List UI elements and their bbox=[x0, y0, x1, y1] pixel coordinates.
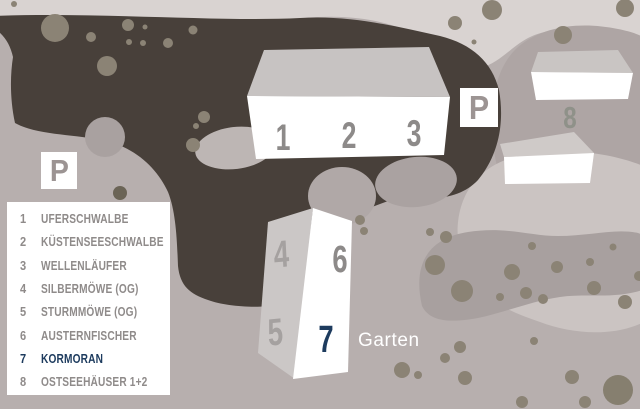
building-number-2: 2 bbox=[342, 115, 357, 156]
building-8-upper bbox=[531, 50, 633, 100]
legend-item-austernfischer: 6 AUSTERNFISCHER bbox=[20, 323, 170, 346]
building-123-roof bbox=[247, 47, 450, 97]
legend-item-wellenlaeufer: 3 WELLENLÄUFER bbox=[20, 254, 170, 277]
legend-item-number: 4 bbox=[20, 282, 38, 295]
legend-item-number: 7 bbox=[20, 352, 38, 365]
legend-item-number: 6 bbox=[20, 329, 38, 342]
legend-item-number: 5 bbox=[20, 305, 38, 318]
building-number-7-highlighted: 7 bbox=[318, 319, 333, 361]
legend-item-label: AUSTERNFISCHER bbox=[41, 329, 137, 342]
garden-label: Garten bbox=[358, 330, 420, 352]
legend-item-kormoran-highlighted: 7 KORMORAN bbox=[20, 347, 170, 370]
legend-item-label: SILBERMÖWE (OG) bbox=[41, 282, 139, 295]
legend-item-number: 2 bbox=[20, 235, 38, 248]
building-8-lower-front bbox=[504, 153, 594, 184]
building-number-5: 5 bbox=[267, 311, 284, 355]
building-number-4: 4 bbox=[273, 233, 291, 277]
legend-item-label: KORMORAN bbox=[41, 352, 103, 365]
legend-item-silbermoewe: 4 SILBERMÖWE (OG) bbox=[20, 277, 170, 300]
legend-item-label: STURMMÖWE (OG) bbox=[41, 305, 137, 318]
resort-site-map: 1 2 3 4 5 6 7 8 P P Garten bbox=[0, 0, 640, 409]
legend-item-number: 3 bbox=[20, 259, 38, 272]
parking-sign-letter: P bbox=[49, 153, 68, 189]
legend-item-label: KÜSTENSEESCHWALBE bbox=[41, 235, 164, 248]
legend-item-kuestenseeschwalbe: 2 KÜSTENSEESCHWALBE bbox=[20, 230, 170, 253]
legend-item-number: 8 bbox=[20, 375, 38, 388]
parking-sign-right: P bbox=[460, 88, 498, 127]
building-number-3: 3 bbox=[407, 113, 422, 154]
legend-item-number: 1 bbox=[20, 212, 38, 225]
legend-panel: 1 UFERSCHWALBE 2 KÜSTENSEESCHWALBE 3 WEL… bbox=[7, 202, 170, 395]
legend-item-label: WELLENLÄUFER bbox=[41, 259, 127, 272]
building-8-upper-front bbox=[531, 72, 633, 100]
building-number-1: 1 bbox=[276, 117, 291, 158]
building-8-upper-roof bbox=[531, 50, 633, 73]
building-123: 1 2 3 bbox=[247, 47, 450, 159]
parking-sign-left: P bbox=[41, 152, 77, 189]
legend-item-ostseehaeuser: 8 OSTSEEHÄUSER 1+2 bbox=[20, 370, 170, 393]
parking-sign-letter: P bbox=[469, 89, 489, 127]
building-number-6: 6 bbox=[332, 239, 347, 281]
legend-item-label: OSTSEEHÄUSER 1+2 bbox=[41, 375, 147, 388]
legend-item-sturmmoewe: 5 STURMMÖWE (OG) bbox=[20, 300, 170, 323]
legend-item-uferschwalbe: 1 UFERSCHWALBE bbox=[20, 207, 170, 230]
legend-item-label: UFERSCHWALBE bbox=[41, 212, 129, 225]
building-number-8: 8 bbox=[563, 100, 576, 135]
building-4567: 4 5 6 7 bbox=[258, 208, 352, 379]
